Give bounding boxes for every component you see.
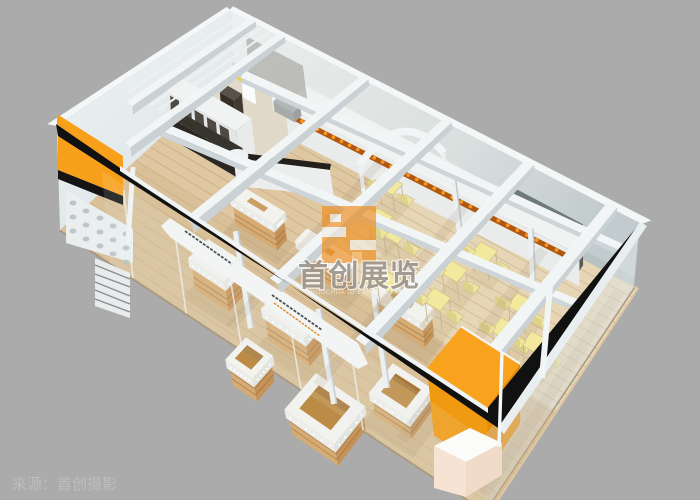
- svg-text:SHOUCHUANG EXHIBITION: SHOUCHUANG EXHIBITION: [306, 290, 398, 296]
- svg-text:来源：首创摄影: 来源：首创摄影: [12, 476, 117, 493]
- svg-text:首创展览: 首创展览: [298, 260, 420, 293]
